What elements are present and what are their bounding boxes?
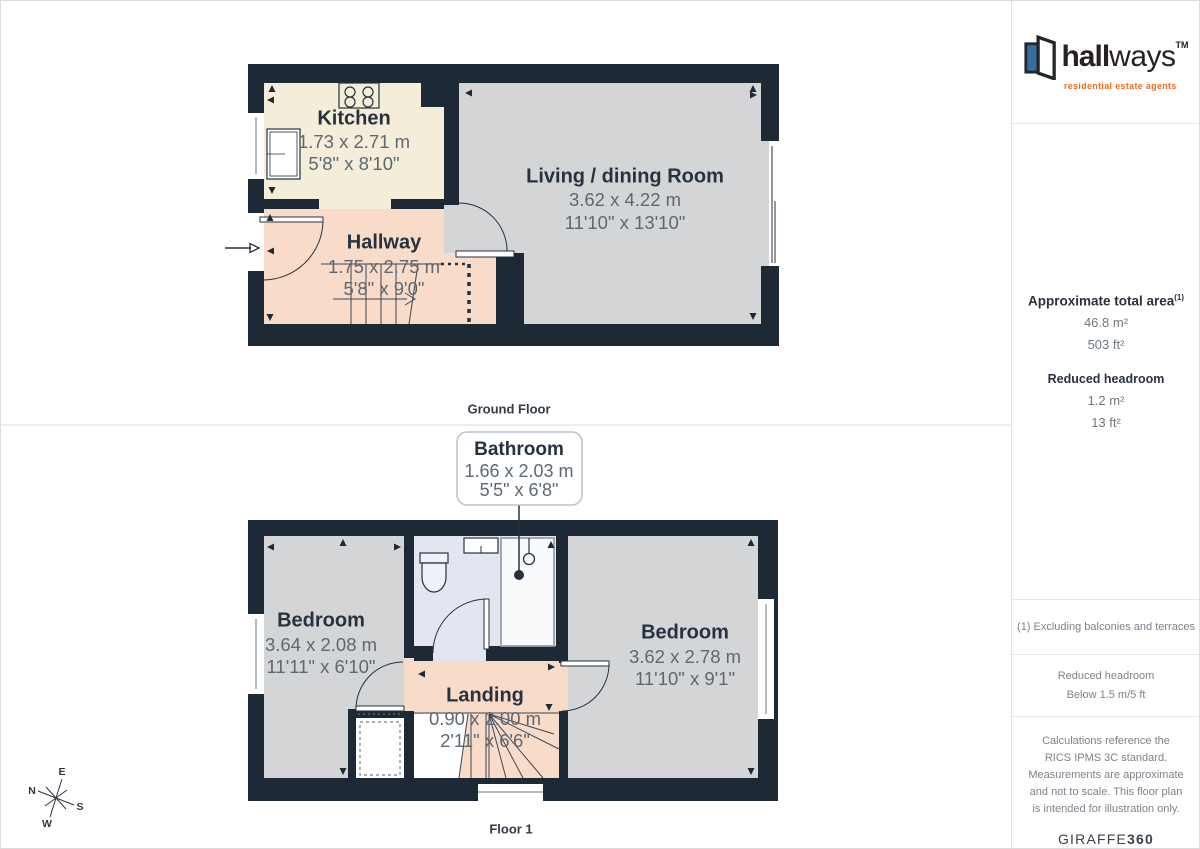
toilet-icon [420, 553, 448, 592]
brand-tagline: residential estate agents [1064, 81, 1177, 91]
bedroom-right-imperial: 11'10" x 9'1" [635, 668, 735, 689]
living-window [761, 141, 779, 266]
stair-window [478, 784, 543, 801]
info-sidebar: hallwaysTM residential estate agents App… [1011, 1, 1200, 848]
kitchen-window [248, 113, 264, 179]
first-floor-plan: Bedroom 3.64 x 2.08 m 11'11" x 6'10" Bed… [248, 432, 778, 836]
closet [348, 709, 404, 778]
landing-imperial: 2'11" x 6'6" [440, 730, 530, 751]
bedroom-right-metric: 3.62 x 2.78 m [629, 646, 741, 667]
door-logo-icon [1023, 34, 1057, 80]
plan-area: Kitchen 1.73 x 2.71 m 5'8" x 8'10" Livin… [1, 1, 1011, 848]
compass-n: N [28, 785, 36, 797]
living-imperial: 11'10" x 13'10" [565, 212, 686, 233]
living-label: Living / dining Room [526, 165, 724, 187]
floorplan-canvas: Kitchen 1.73 x 2.71 m 5'8" x 8'10" Livin… [1, 1, 1011, 848]
bathroom-metric: 1.66 x 2.03 m [464, 461, 573, 481]
total-area-title: Approximate total area(1) [1028, 293, 1184, 309]
hallway-stair-pocket [444, 253, 496, 324]
hallway-imperial: 5'8" x 9'0" [344, 278, 425, 299]
kitchen-sink-icon [267, 129, 300, 179]
bedroom-left-door-opening [404, 658, 414, 711]
compass-icon: N E S W [28, 766, 83, 830]
brand-name-light: ways [1109, 40, 1175, 73]
total-area-metric: 46.8 m² [1084, 315, 1128, 330]
bedroom-right-door-opening [556, 663, 568, 711]
stove-icon [339, 83, 379, 108]
stair-wall-stub [496, 253, 524, 324]
bathroom-door-opening [433, 646, 486, 661]
bathroom-label: Bathroom [474, 439, 564, 460]
reduced-headroom-imperial: 13 ft² [1091, 415, 1121, 430]
compass-w: W [42, 818, 52, 830]
kitchen-hall-wall-left [264, 199, 319, 209]
legend-value: Below 1.5 m/5 ft [1067, 689, 1146, 701]
first-floor-label: Floor 1 [489, 821, 532, 836]
floorplan-page: Kitchen 1.73 x 2.71 m 5'8" x 8'10" Livin… [0, 0, 1200, 849]
total-area-label: Approximate total area [1028, 293, 1174, 308]
bathroom-imperial: 5'5" x 6'8" [480, 480, 559, 500]
landing-label: Landing [446, 684, 524, 706]
total-area-footnote-ref: (1) [1174, 293, 1184, 302]
compass-e: E [58, 766, 65, 778]
ground-floor-label: Ground Floor [467, 401, 550, 416]
headroom-legend: Reduced headroom Below 1.5 m/5 ft [1012, 655, 1200, 717]
provider-name: GIRAFFE [1058, 831, 1127, 847]
brand-name: hallwaysTM [1061, 41, 1188, 72]
reduced-headroom-metric: 1.2 m² [1088, 393, 1125, 408]
shower-icon [501, 538, 554, 646]
legend-label: Reduced headroom [1058, 670, 1155, 682]
bedroom-left-window [248, 614, 264, 694]
bathroom-callout: Bathroom 1.66 x 2.03 m 5'5" x 6'8" [457, 432, 582, 505]
brand-name-bold: hall [1061, 40, 1109, 73]
bedroom-right-label: Bedroom [641, 621, 729, 643]
kitchen-metric: 1.73 x 2.71 m [298, 131, 410, 152]
trademark-mark: TM [1176, 40, 1189, 50]
disclaimer-section: Calculations reference the RICS IPMS 3C … [1012, 717, 1200, 848]
compass-s: S [76, 801, 83, 813]
ground-floor-plan: Kitchen 1.73 x 2.71 m 5'8" x 8'10" Livin… [225, 64, 779, 416]
living-metric: 3.62 x 4.22 m [569, 189, 681, 210]
brand-logo: hallwaysTM residential estate agents [1012, 1, 1200, 124]
provider-logo: GIRAFFE360 [1012, 831, 1200, 847]
kitchen-hall-wall-right [391, 199, 444, 209]
bedroom-left-label: Bedroom [277, 609, 365, 631]
bedroom-left-metric: 3.64 x 2.08 m [265, 634, 377, 655]
landing-metric: 0.90 x 2.00 m [429, 708, 541, 729]
bathroom-sink-icon [464, 538, 498, 553]
bedroom-left-imperial: 11'11" x 6'10" [266, 656, 375, 677]
provider-suffix: 360 [1127, 831, 1154, 847]
reduced-headroom-title: Reduced headroom [1048, 372, 1165, 386]
kitchen-imperial: 5'8" x 8'10" [308, 153, 399, 174]
hallway-label: Hallway [347, 231, 422, 253]
living-door-opening [444, 205, 459, 253]
total-area-imperial: 503 ft² [1088, 337, 1125, 352]
brand-logo-row: hallwaysTM [1023, 34, 1188, 80]
bedroom-right-window [758, 599, 774, 719]
disclaimer-text: Calculations reference the RICS IPMS 3C … [1028, 733, 1184, 818]
hallway-metric: 1.75 x 2.75 m [328, 256, 440, 277]
footnote-section: (1) Excluding balconies and terraces [1012, 600, 1200, 655]
footnote-text: (1) Excluding balconies and terraces [1017, 621, 1195, 633]
kitchen-label: Kitchen [317, 107, 390, 129]
area-summary: Approximate total area(1) 46.8 m² 503 ft… [1012, 124, 1200, 600]
